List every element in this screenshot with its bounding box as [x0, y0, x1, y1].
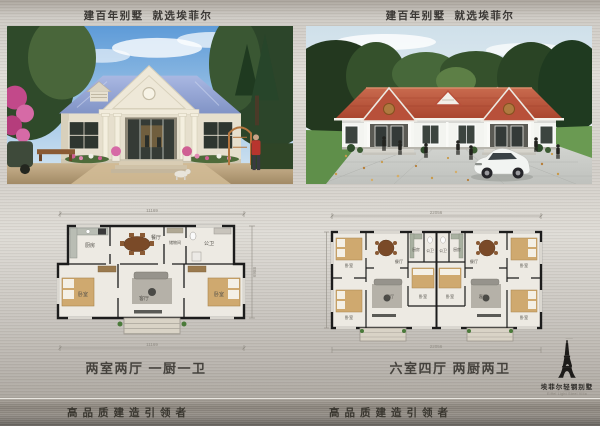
- right-floorplan-drawing: 22056 22056: [324, 206, 549, 358]
- right-floorplan: 22056 22056: [324, 206, 549, 358]
- u2-bedroom-r-label: 卧室: [446, 293, 454, 300]
- porch: [124, 318, 180, 334]
- gable-medallion: [384, 104, 395, 115]
- right-villa-render: [306, 26, 592, 184]
- entrance-glass-doors: [125, 117, 177, 161]
- dim-top-label: 22056: [430, 210, 443, 215]
- brand-logo: 埃菲尔轻钢别墅 Eiffel Light Steel Villa: [538, 338, 596, 396]
- left-villa-render: [7, 26, 293, 184]
- top-slogan-right: 建百年别墅 就选埃菲尔: [328, 8, 572, 24]
- bottom-slogan-right: 高品质建造引领者: [291, 405, 491, 421]
- dim-bottom-label: 22056: [430, 344, 443, 349]
- room-label-kitchen: 厨房: [85, 242, 95, 249]
- u2-kitchen-label: 厨房: [453, 247, 461, 252]
- brand-name-en: Eiffel Light Steel Villa: [538, 392, 596, 396]
- room-label-bedroom-right: 卧室: [214, 291, 224, 298]
- right-plan-caption: 六室四厅 两厨两卫: [330, 361, 570, 377]
- u2-dining-label: 餐厅: [470, 258, 478, 265]
- left-floorplan: 11169 11169 8869: [46, 200, 258, 358]
- porch-left: [360, 328, 406, 341]
- dim-top-label: 11169: [146, 208, 158, 213]
- u1-bath-label: 公卫: [426, 248, 434, 253]
- bottom-slogan-left: 高品质建造引领者: [29, 405, 229, 421]
- left-villa-photo: [7, 26, 293, 184]
- footer-band: 高品质建造引领者 高品质建造引领者: [0, 398, 600, 426]
- u1-dining-label: 餐厅: [395, 258, 403, 265]
- storage-shelf: [167, 228, 183, 233]
- room-label-living: 客厅: [139, 295, 149, 302]
- dim-bottom-label: 11169: [146, 342, 158, 347]
- u2-bath-label: 公卫: [439, 248, 447, 253]
- room-label-dining: 餐厅: [151, 234, 161, 241]
- u2-bedroom-bl-label: 卧室: [520, 314, 528, 321]
- u1-living-label: 客厅: [386, 293, 394, 300]
- brand-name: 埃菲尔轻钢别墅: [538, 381, 596, 391]
- gable-medallion: [504, 104, 515, 115]
- room-label-storage: 储物间: [169, 239, 181, 245]
- brochure-poster: 建百年别墅 就选埃菲尔 建百年别墅 就选埃菲尔: [0, 0, 600, 426]
- eiffel-tower-icon: [550, 338, 584, 380]
- u1-bedroom-bl-label: 卧室: [345, 314, 353, 321]
- u2-bedroom-tl-label: 卧室: [520, 262, 528, 269]
- dim-right-label: 8869: [252, 267, 257, 278]
- left-floorplan-drawing: 11169 11169 8869: [46, 200, 258, 358]
- u2-living-label: 客厅: [479, 293, 487, 300]
- center-windows: [422, 122, 475, 148]
- room-label-bedroom-left: 卧室: [78, 291, 88, 298]
- porch-right: [467, 328, 513, 341]
- right-villa-photo: [306, 26, 592, 184]
- u1-kitchen-label: 厨房: [412, 247, 420, 252]
- room-label-bath: 公卫: [204, 241, 214, 247]
- top-slogan-left: 建百年别墅 就选埃菲尔: [26, 8, 270, 24]
- left-plan-caption: 两室两厅 一厨一卫: [26, 361, 266, 377]
- u1-bedroom-tl-label: 卧室: [345, 262, 353, 269]
- duplex-house: [334, 88, 564, 155]
- pediment-medallion: [143, 88, 155, 100]
- u1-bedroom-r-label: 卧室: [419, 293, 427, 300]
